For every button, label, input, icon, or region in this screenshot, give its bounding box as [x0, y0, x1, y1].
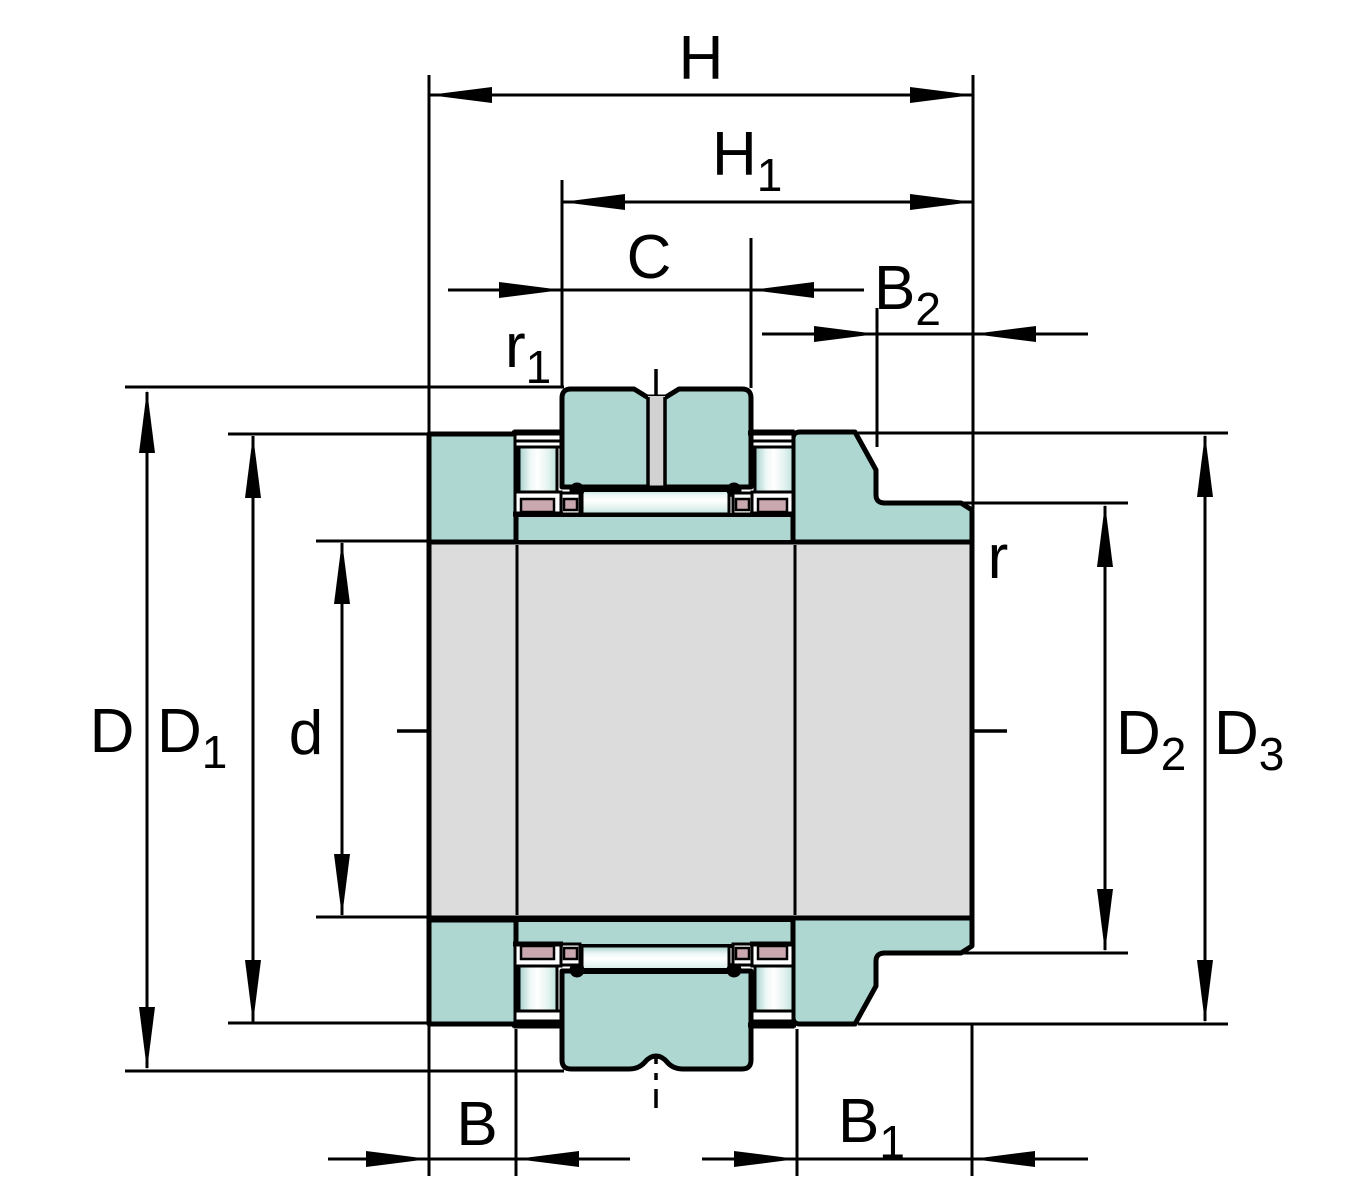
dimension-D1: [245, 435, 261, 1023]
arrowhead: [429, 87, 492, 103]
axial-roller-top-right: [755, 447, 793, 492]
shaft-section: [429, 542, 972, 918]
raceway-dot: [730, 966, 739, 975]
dimension-D3: [1197, 434, 1213, 1023]
washer-slot: [648, 396, 665, 487]
cage-pink: [758, 499, 787, 512]
arrowhead: [1197, 434, 1213, 497]
label-D3-sub: 3: [1259, 728, 1285, 780]
arrowhead: [973, 326, 1036, 342]
label-D1-sub: 1: [202, 726, 228, 778]
label-B2: B2: [874, 254, 941, 335]
shaft-body: [429, 542, 972, 918]
cage-pink: [736, 499, 749, 510]
arrowhead: [1097, 504, 1113, 567]
shaft-washer-bottom: [562, 971, 751, 1069]
axial-roller-top-left: [519, 447, 557, 492]
dimension-D2: [1097, 504, 1113, 952]
label-D3-main: D: [1214, 699, 1259, 768]
label-H1-main: H: [712, 120, 757, 189]
label-B: B: [456, 1090, 497, 1159]
cage-pink: [564, 499, 577, 510]
flange-top-left: [429, 434, 516, 542]
arrowhead: [516, 1151, 579, 1167]
arrowhead: [751, 282, 814, 298]
arrowhead: [562, 194, 625, 210]
raceway-dot: [573, 966, 582, 975]
sleeve-top: [516, 515, 795, 542]
label-r: r: [988, 523, 1009, 592]
arrowhead: [1097, 889, 1113, 952]
label-D3: D3: [1214, 699, 1284, 780]
label-B1-sub: 1: [879, 1116, 905, 1168]
cage-pink: [758, 946, 787, 959]
arrowhead: [334, 854, 350, 917]
arrowhead: [499, 282, 562, 298]
label-D: D: [90, 697, 135, 766]
label-D2: D2: [1116, 699, 1186, 780]
washer-slot-fill: [648, 396, 665, 487]
cage-pink: [521, 946, 554, 959]
label-r1-main: r: [505, 312, 526, 381]
arrowhead: [139, 1007, 155, 1070]
label-d: d: [289, 699, 323, 768]
arrowhead: [245, 960, 261, 1023]
axial-roller-bottom-right: [755, 966, 793, 1011]
arrowhead: [910, 87, 973, 103]
arrowhead: [245, 435, 261, 498]
bearing-cross-section: [429, 389, 972, 1069]
flange-bottom-left: [429, 920, 516, 1024]
dimension-D: [139, 390, 155, 1070]
label-D1-main: D: [157, 697, 202, 766]
label-B2-sub: 2: [915, 283, 941, 335]
label-r1: r1: [505, 312, 551, 393]
label-B1: B1: [838, 1087, 905, 1168]
drawing-svg: H H1 C B2 r1 r D D1 d D2 D3 B B1: [0, 0, 1350, 1200]
label-H1: H1: [712, 120, 782, 201]
label-C: C: [627, 223, 672, 292]
label-H: H: [679, 24, 724, 93]
arrowhead: [734, 1151, 797, 1167]
arrowhead: [366, 1151, 429, 1167]
outer-ring-bottom-right: [793, 918, 972, 1024]
arrowhead: [910, 194, 973, 210]
cage-pink: [521, 499, 554, 512]
arrowhead: [972, 1151, 1035, 1167]
label-B2-main: B: [874, 254, 915, 323]
outer-ring-top-right: [793, 432, 972, 542]
label-H1-sub: 1: [757, 149, 783, 201]
arrowhead: [814, 326, 877, 342]
arrowhead: [139, 390, 155, 453]
arrowhead: [334, 541, 350, 604]
label-D2-main: D: [1116, 699, 1161, 768]
axial-roller-bottom-left: [519, 966, 557, 1011]
label-D1: D1: [157, 697, 227, 778]
cage-pink: [564, 948, 577, 959]
dimension-d: [334, 541, 350, 917]
arrowhead: [1197, 960, 1213, 1023]
cage-pink: [736, 948, 749, 959]
bearing-dimension-drawing: H H1 C B2 r1 r D D1 d D2 D3 B B1: [0, 0, 1350, 1200]
label-B1-main: B: [838, 1087, 879, 1156]
label-D2-sub: 2: [1161, 728, 1187, 780]
label-r1-sub: 1: [526, 341, 552, 393]
